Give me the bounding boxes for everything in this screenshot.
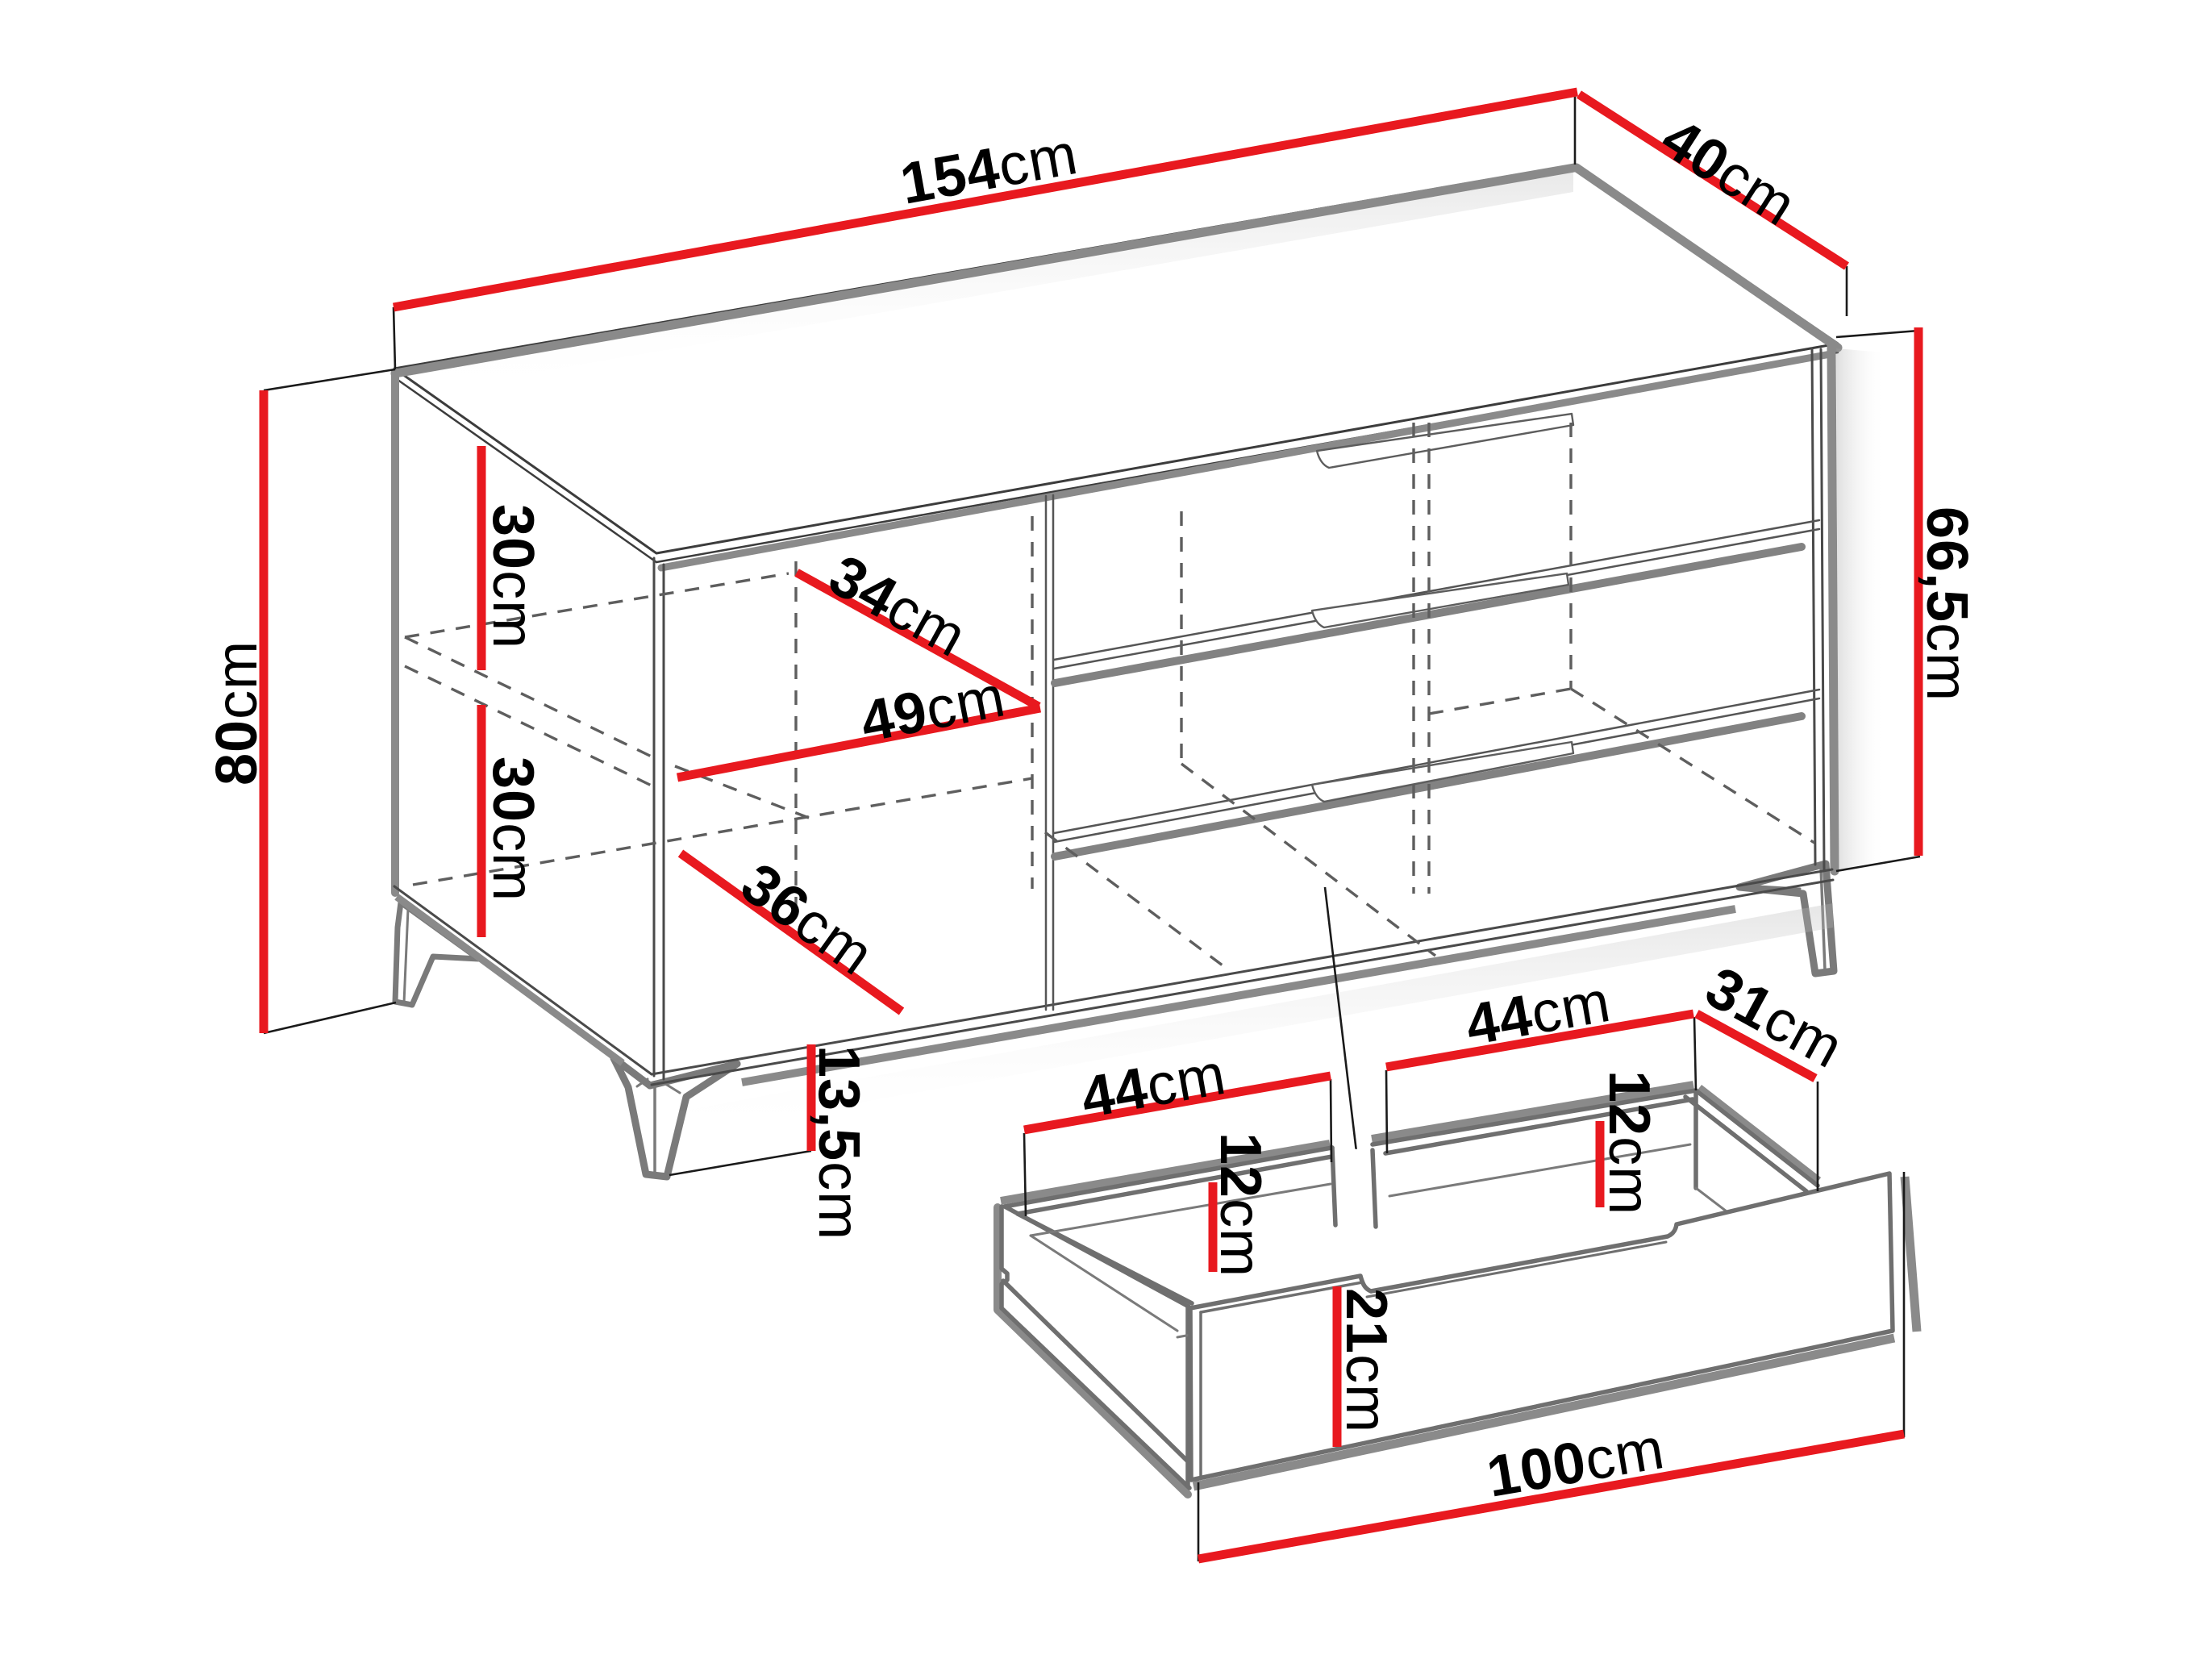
svg-text:13,5cm: 13,5cm bbox=[806, 1045, 871, 1240]
svg-text:12cm: 12cm bbox=[1597, 1070, 1661, 1215]
svg-text:66,5cm: 66,5cm bbox=[1914, 506, 1979, 702]
svg-text:30cm: 30cm bbox=[481, 504, 545, 649]
svg-text:30cm: 30cm bbox=[481, 757, 545, 902]
svg-text:12cm: 12cm bbox=[1208, 1132, 1273, 1278]
svg-text:80cm: 80cm bbox=[205, 640, 269, 786]
svg-text:21cm: 21cm bbox=[1334, 1288, 1398, 1433]
